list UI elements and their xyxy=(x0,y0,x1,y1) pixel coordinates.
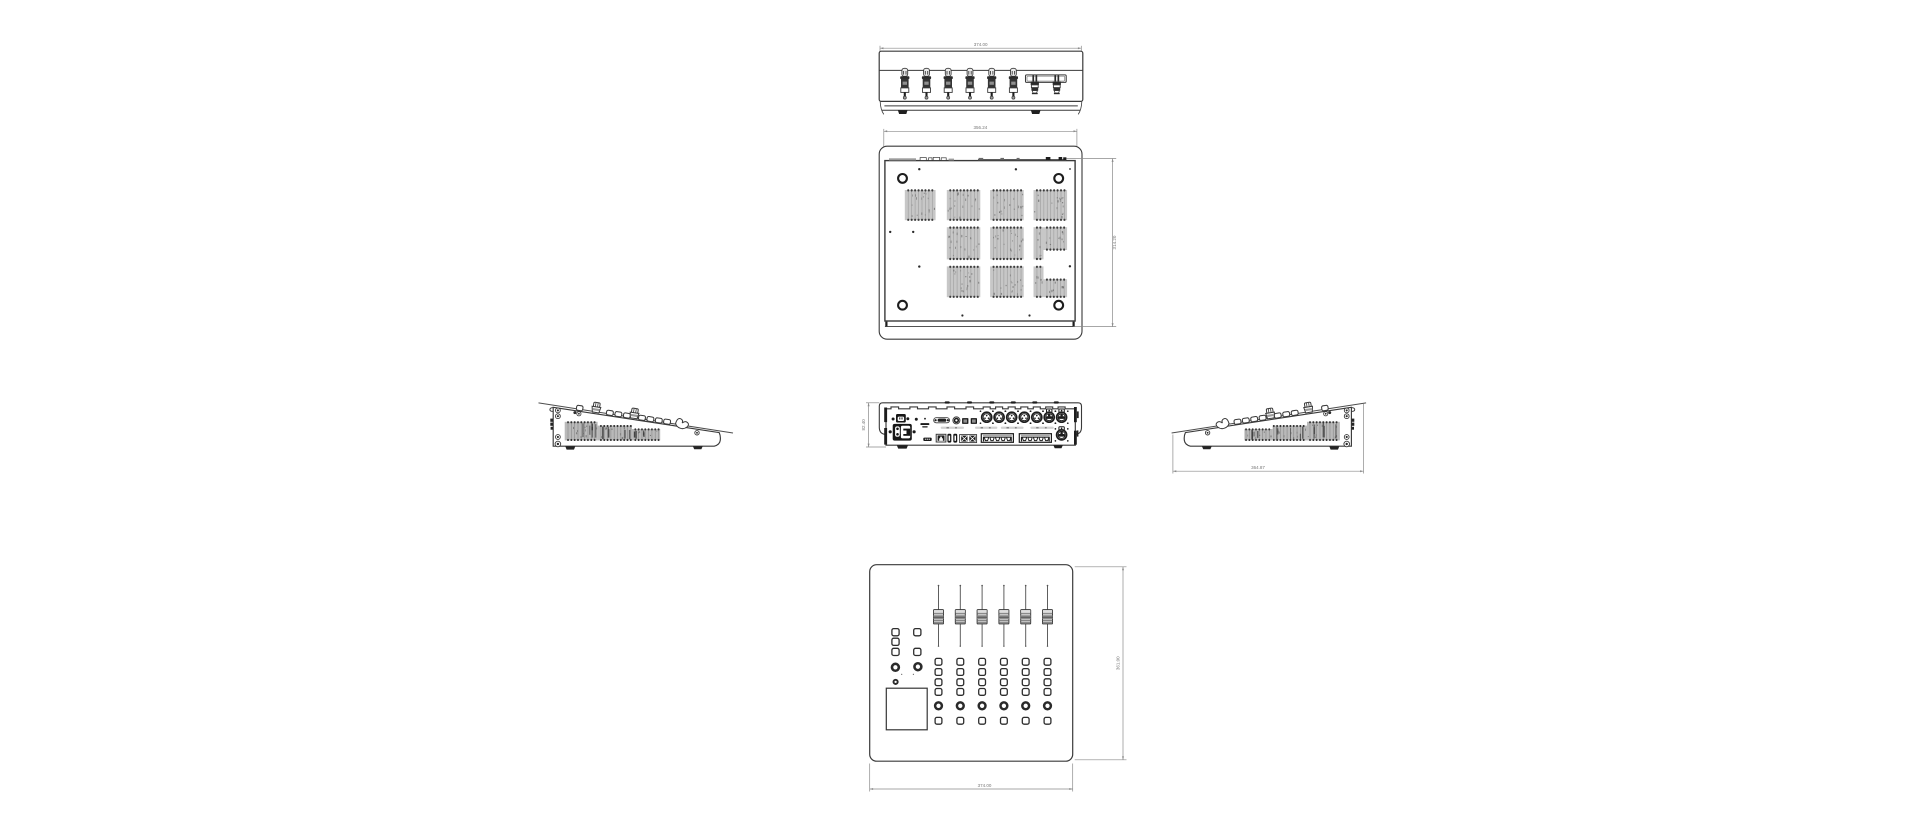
svg-text:364.87: 364.87 xyxy=(1251,465,1265,470)
svg-text:374.00: 374.00 xyxy=(978,783,992,788)
svg-text:314.20: 314.20 xyxy=(1112,235,1117,249)
svg-text:374.00: 374.00 xyxy=(974,42,988,47)
svg-text:361.00: 361.00 xyxy=(1115,656,1120,670)
svg-text:82.40: 82.40 xyxy=(861,419,866,431)
svg-text:356.24: 356.24 xyxy=(973,125,987,130)
